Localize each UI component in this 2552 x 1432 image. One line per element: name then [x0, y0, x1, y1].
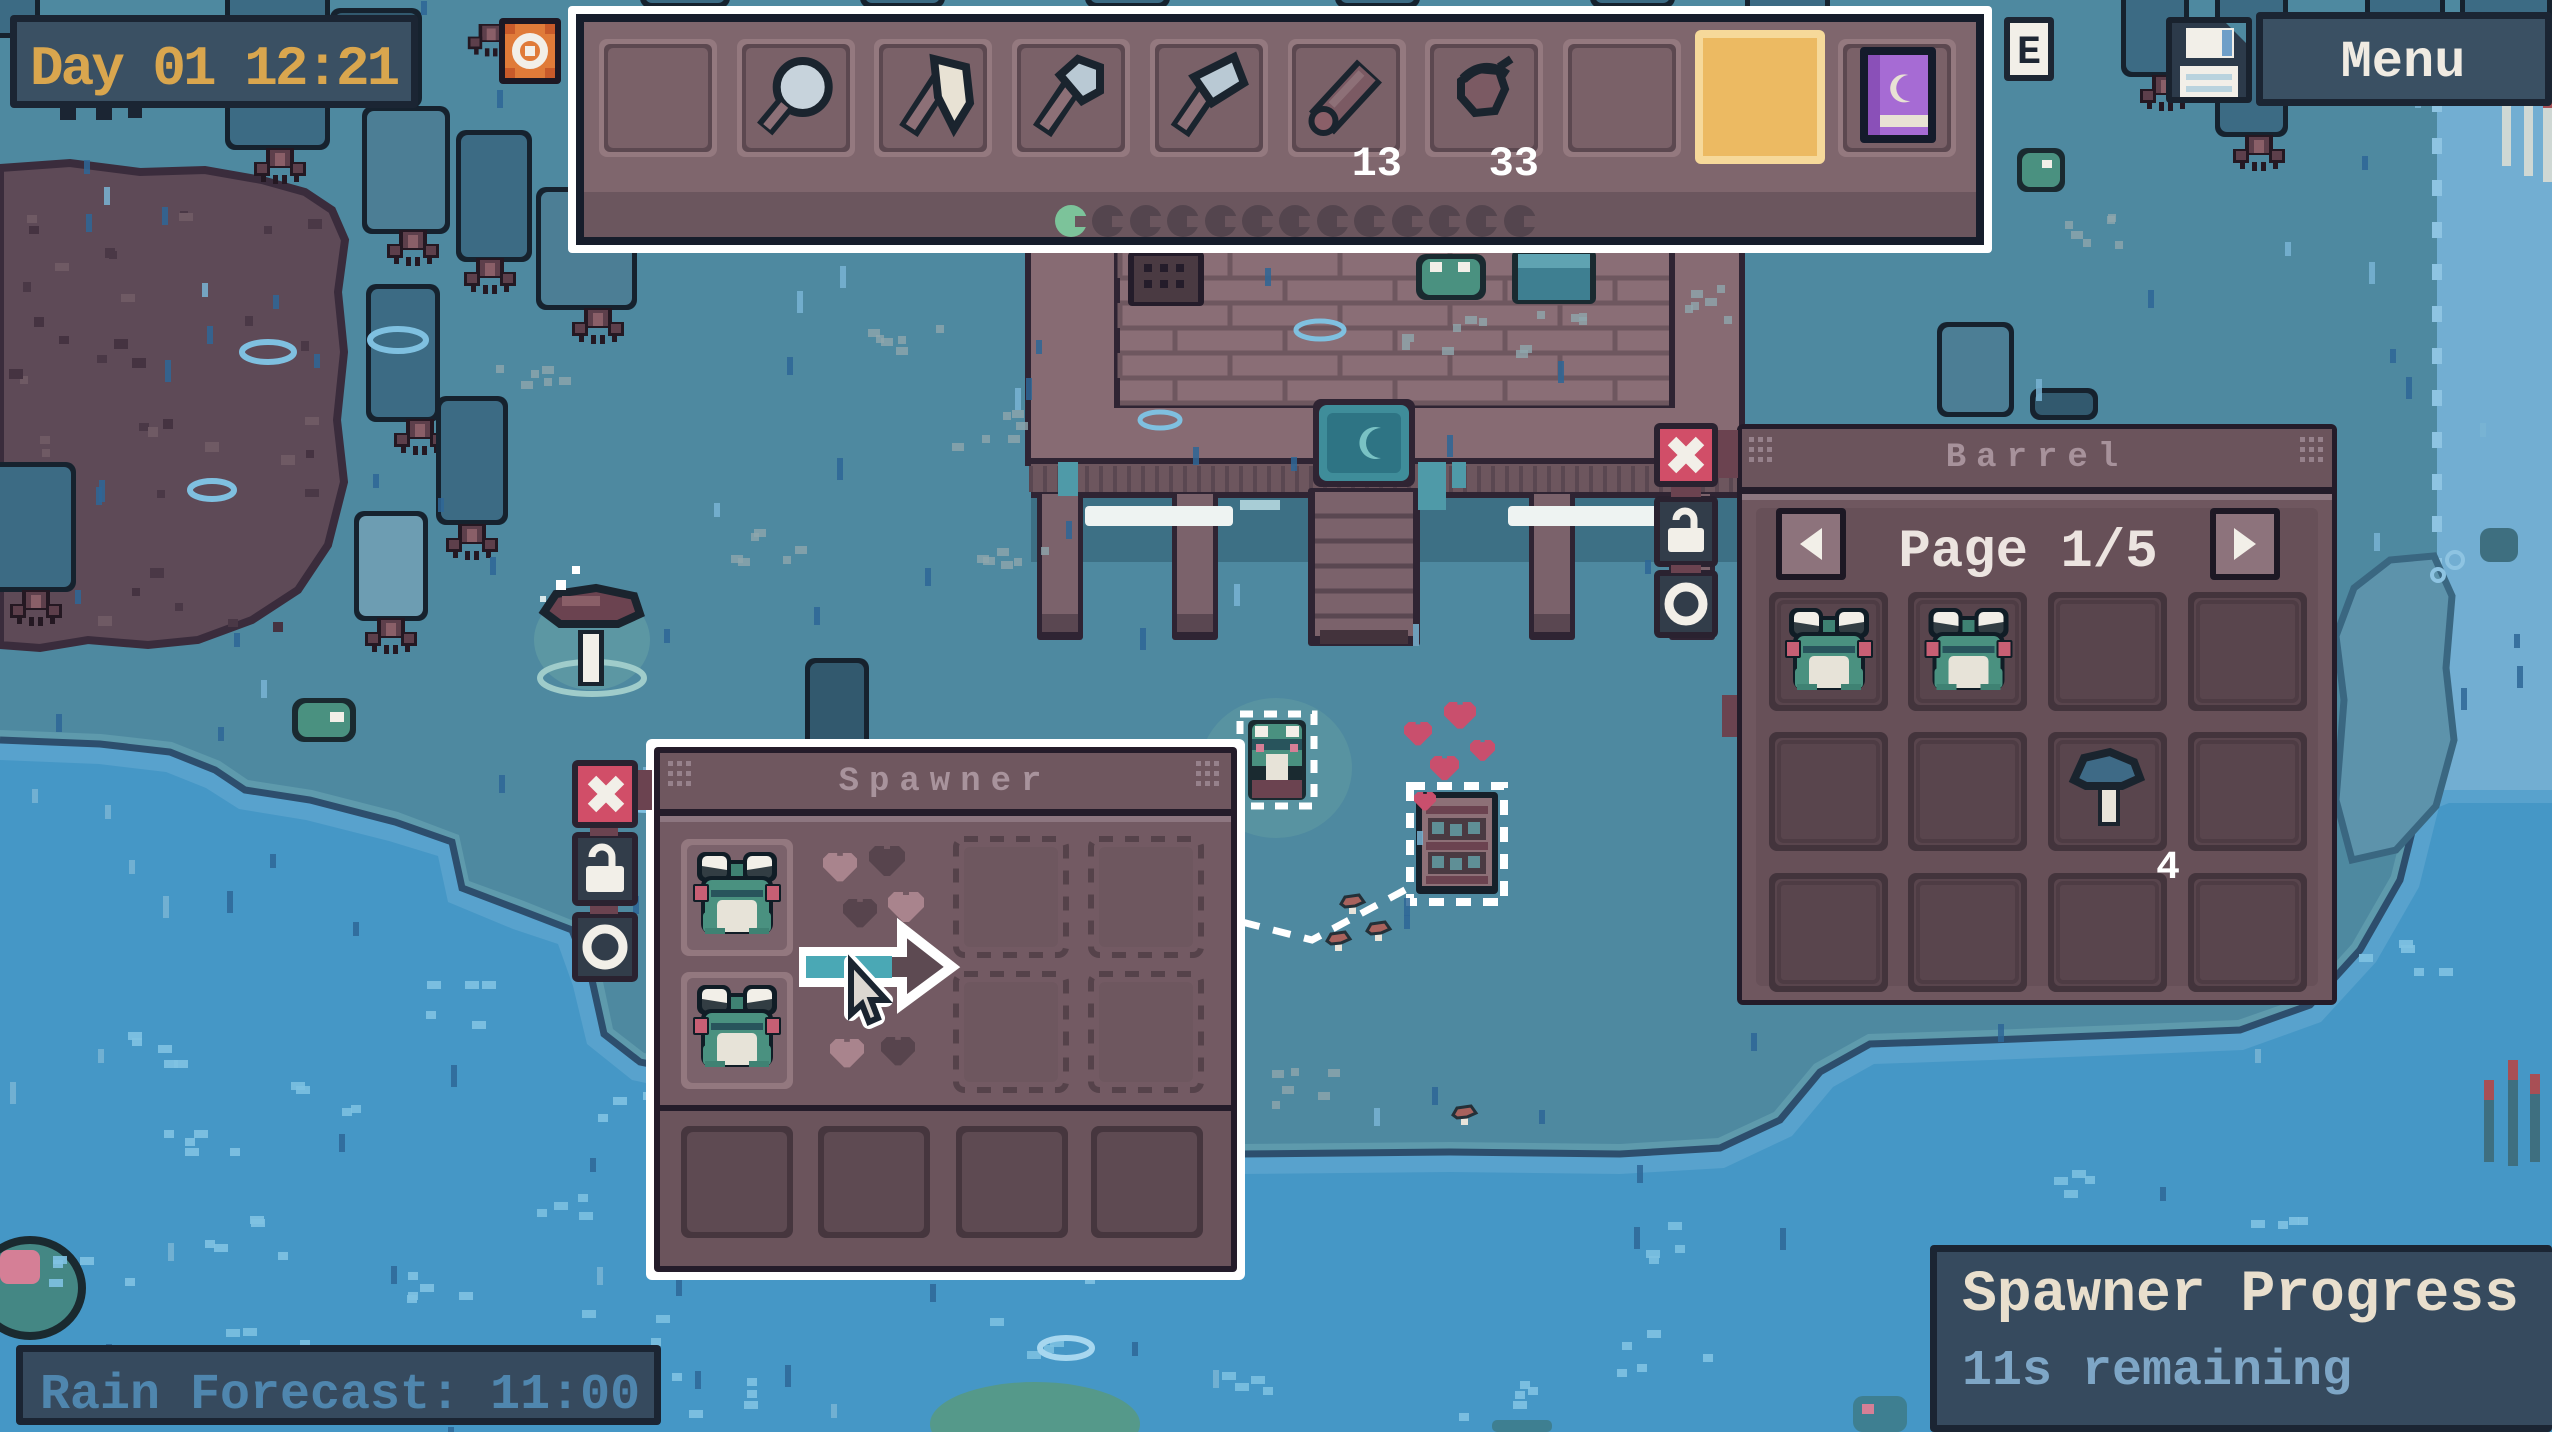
- svg-text:Menu: Menu: [2341, 33, 2466, 92]
- svg-text:E: E: [2017, 31, 2041, 76]
- svg-text:Spawner: Spawner: [839, 763, 1052, 801]
- svg-text:13: 13: [1352, 140, 1402, 188]
- svg-text:Rain Forecast: 11:00: Rain Forecast: 11:00: [40, 1367, 640, 1424]
- svg-text:Day 01 12:21: Day 01 12:21: [30, 37, 399, 101]
- svg-text:4: 4: [2156, 846, 2180, 891]
- svg-text:Page 1/5: Page 1/5: [1898, 522, 2157, 583]
- svg-text:Barrel: Barrel: [1946, 439, 2128, 477]
- svg-text:11s remaining: 11s remaining: [1962, 1343, 2352, 1400]
- svg-text:Spawner Progress: Spawner Progress: [1962, 1263, 2519, 1328]
- svg-text:33: 33: [1489, 140, 1539, 188]
